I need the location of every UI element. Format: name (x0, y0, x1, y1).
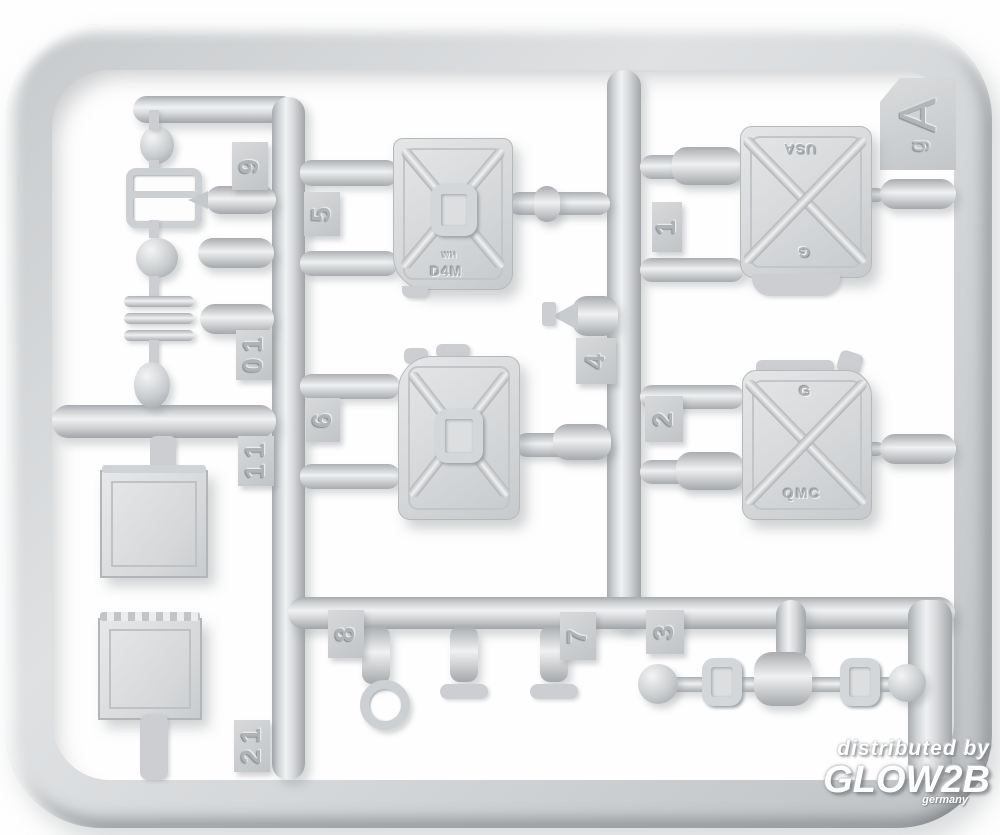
chain-cap (702, 658, 742, 706)
bottle-part (450, 626, 478, 682)
ball-part (140, 126, 174, 164)
connector-cylinder (553, 424, 611, 460)
part-number-tag-12: 12 (234, 720, 270, 772)
tag-number: 11 (248, 440, 263, 482)
connector-cylinder (880, 179, 956, 209)
tag-number: 4 (588, 351, 603, 372)
watermark-distributed-by: distributed by (762, 738, 990, 759)
can-center-boss (431, 184, 477, 236)
part-number-tag-8: 8 (328, 610, 364, 658)
cone-ball-part (134, 362, 170, 408)
can-center-boss (435, 409, 483, 463)
part-number-tag-6: 6 (306, 398, 340, 442)
comb-bracket-part (124, 296, 194, 342)
wing-cap (440, 684, 488, 699)
can-marking-usa: USA (783, 141, 816, 157)
stub (300, 160, 398, 186)
tag-number: 12 (244, 725, 259, 767)
german-jerry-can-top: WH D4M (393, 138, 513, 290)
can-marking-small: WH (442, 251, 457, 260)
elbow-part (136, 238, 178, 278)
can-marking-g: G (797, 243, 810, 260)
tag-number: 1 (659, 217, 674, 238)
tag-number: 3 (657, 622, 672, 643)
runner-left-vertical (272, 97, 305, 780)
cylinder-part (198, 238, 274, 268)
part-number-tag-11: 11 (238, 436, 274, 486)
bottle-part (362, 626, 390, 684)
runner-bottom-horizontal (288, 597, 955, 629)
tag-number: 9 (242, 156, 257, 177)
tag-number: 2 (656, 409, 671, 430)
runner-mid-left (52, 405, 276, 438)
gate (149, 110, 159, 130)
case-part-lower (98, 618, 202, 720)
cylinder-part (206, 186, 276, 214)
connector-cylinder (676, 452, 744, 490)
can-marking-main: D4M (430, 263, 463, 279)
part-number-tag-2: 2 (645, 396, 683, 442)
chain-cap (840, 658, 880, 706)
nozzle-part (572, 296, 618, 336)
tag-number: 7 (570, 626, 585, 647)
sprue-letter: A (901, 93, 936, 137)
part-number-tag-3: 3 (646, 610, 684, 654)
part-number-tag-5: 5 (304, 192, 340, 236)
chain-tee (754, 652, 812, 706)
part-number-tag-4: 4 (576, 338, 616, 384)
watermark: distributed by GLOW2B germany (762, 738, 990, 806)
part-number-tag-9: 9 (232, 142, 268, 190)
us-jerry-can-top: USA G (740, 126, 872, 278)
chain-ball (638, 664, 678, 704)
sprue-letter-sub: g (909, 140, 927, 152)
tag-number: 8 (338, 624, 353, 645)
can-marking-g: G (799, 383, 812, 400)
can-foot (402, 286, 428, 298)
can-shoulder (752, 274, 840, 296)
can-marking-qmc: QMC (783, 485, 822, 501)
stub (300, 374, 400, 399)
ring-part (360, 680, 410, 730)
nozzle-tip (542, 302, 556, 326)
part-number-tag-10: 10 (236, 330, 272, 380)
part-number-tag-1: 1 (652, 202, 682, 252)
german-jerry-can-bottom (398, 356, 520, 520)
stub (640, 258, 744, 282)
stub (300, 464, 400, 489)
connector-cylinder (672, 147, 742, 185)
gate (149, 220, 159, 238)
part-number-tag-7: 7 (560, 612, 596, 660)
gate (149, 276, 159, 298)
cylinder-tip (188, 191, 208, 209)
sprue-photo: A g (0, 0, 1000, 835)
sprue-letter-tag: A g (880, 78, 956, 170)
stub (300, 251, 398, 276)
gate (140, 714, 168, 780)
connector-cylinder (880, 434, 956, 464)
tag-number: 6 (315, 410, 330, 431)
chain-ball (888, 664, 926, 702)
case-part-upper (100, 470, 208, 578)
gate (149, 340, 159, 364)
tag-number: 10 (246, 334, 261, 376)
us-jerry-can-bottom: G QMC (742, 370, 872, 520)
tag-number: 5 (314, 204, 329, 225)
wing-cap (530, 684, 578, 699)
filler-neck-part (534, 186, 560, 222)
